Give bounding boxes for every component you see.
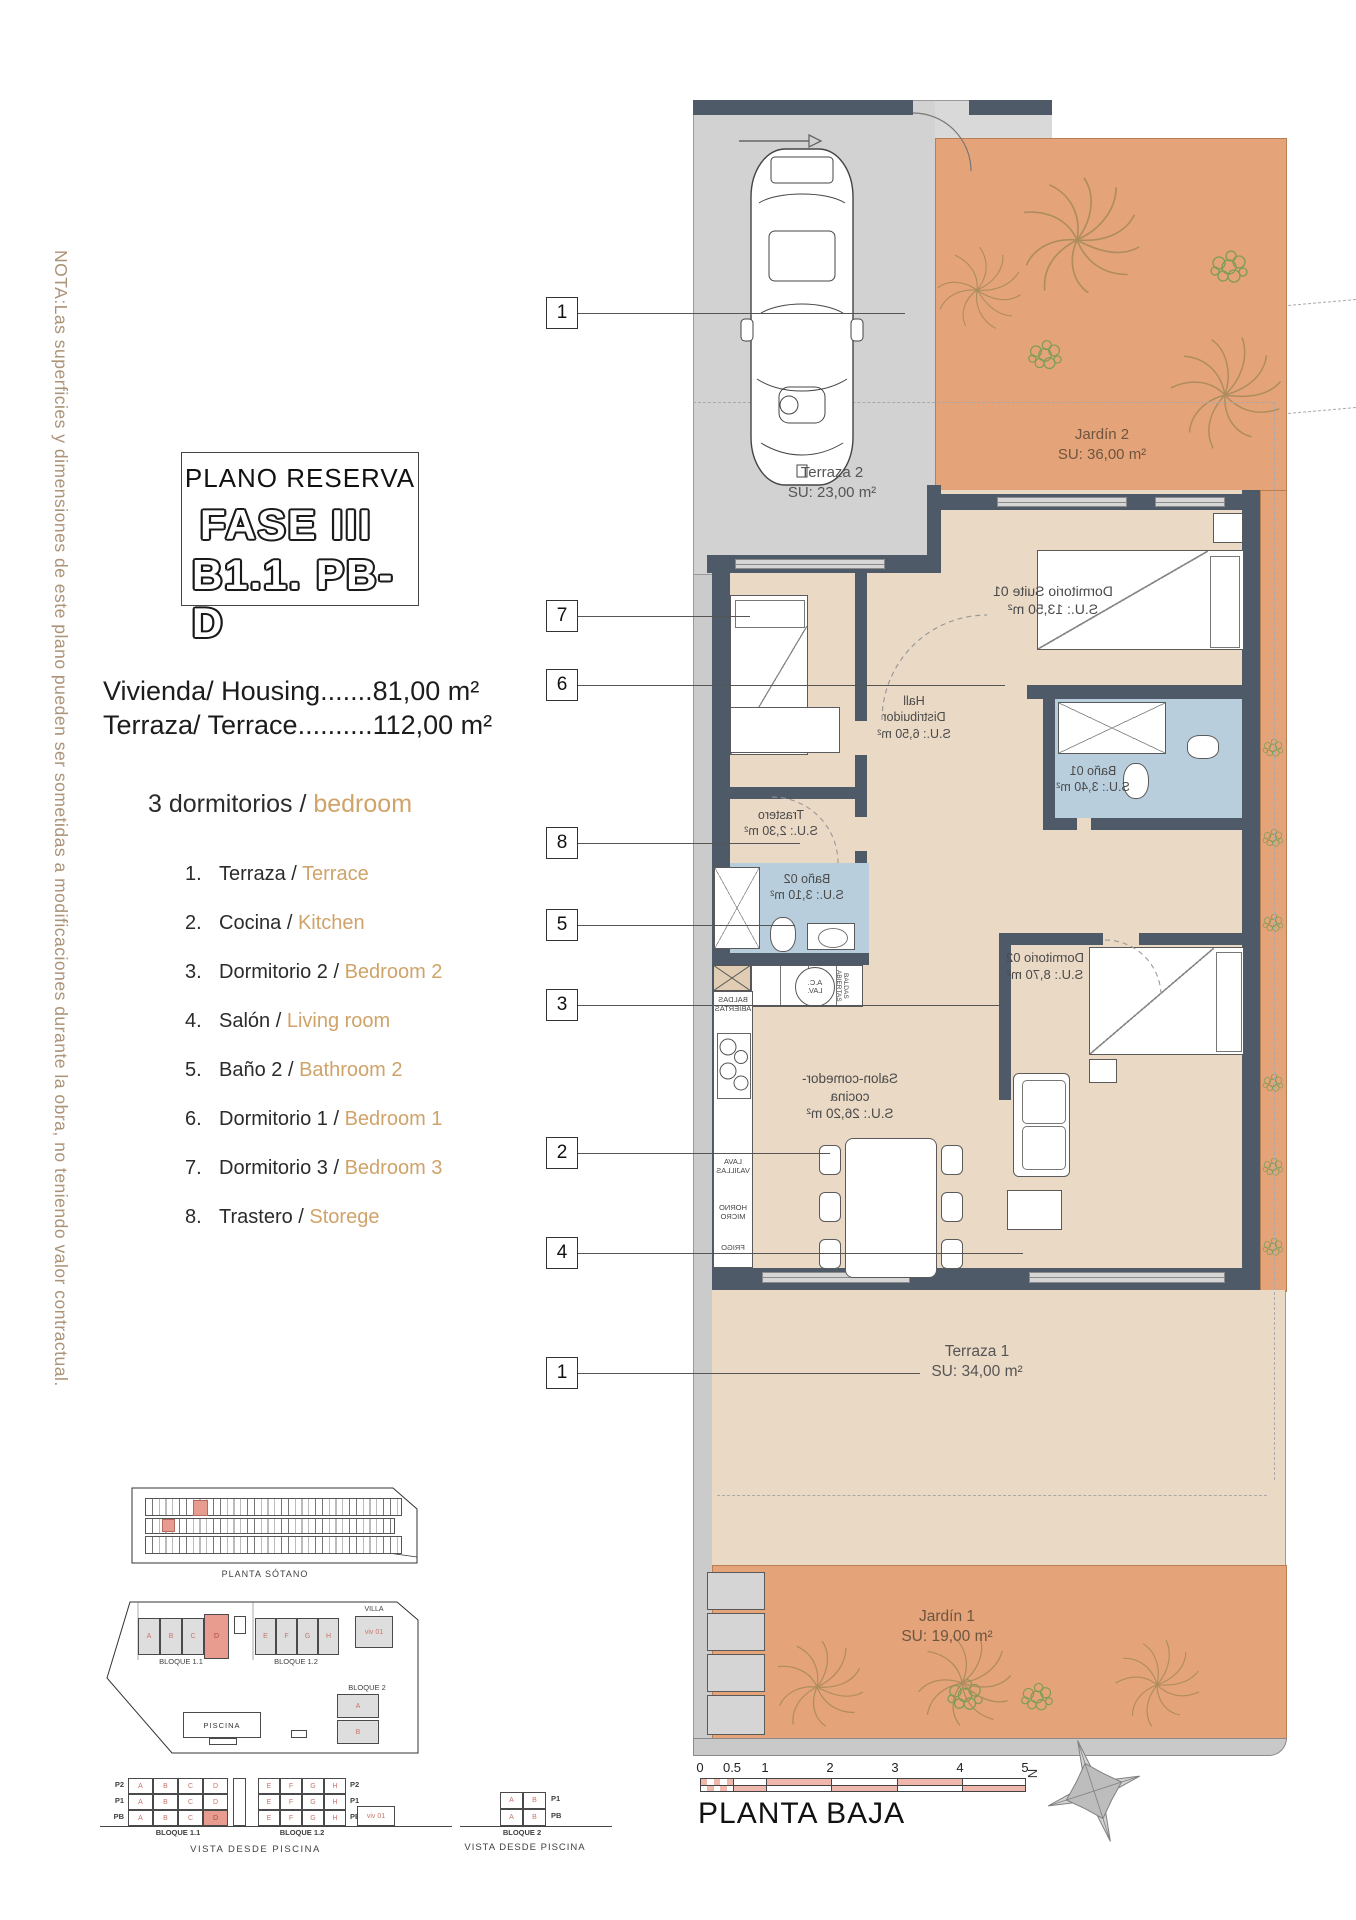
leader-line <box>578 1373 920 1374</box>
elev-cell: A <box>128 1778 153 1794</box>
window <box>1155 497 1225 507</box>
elev-cell: B <box>523 1792 546 1809</box>
elevation-baseline <box>460 1826 612 1827</box>
elev-cell: F <box>280 1810 302 1826</box>
elev-cell: D <box>203 1794 228 1810</box>
legend-item: 3.Dormitorio 2 / Bedroom 2 <box>185 961 442 984</box>
setback-dashed-line <box>1274 402 1275 1480</box>
elev-cell: E <box>258 1794 280 1810</box>
site-unit-d-highlighted: D <box>204 1614 229 1659</box>
open-shelves-label: BALDAS ABIERTAS <box>714 995 752 1013</box>
villa-footprint: viv 01 <box>355 1616 393 1648</box>
legend-en: Terrace <box>302 863 369 885</box>
wall <box>999 933 1103 945</box>
bloque2-label: BLOQUE 2 <box>337 1684 397 1693</box>
elev-cell: A <box>500 1792 523 1809</box>
elev-cell: A <box>128 1794 153 1810</box>
elev-cell: E <box>258 1810 280 1826</box>
legend-item: 4.Salón / Living room <box>185 1010 390 1033</box>
parking-row <box>145 1498 402 1516</box>
wall <box>693 100 913 115</box>
floor-label: P1 <box>350 1797 370 1806</box>
room-label-dorm02: Dormitorio 02S.U.: 8,70 m² <box>989 950 1101 984</box>
legend-en: Bathroom 2 <box>299 1059 402 1081</box>
pool-deck <box>209 1738 237 1745</box>
scale-tick: 2 <box>826 1760 833 1775</box>
elev-cell: C <box>178 1794 203 1810</box>
elev-cell-highlighted: D <box>203 1810 228 1826</box>
room-label-suite01: Dormitorio Suite 01S.U.: 13,50 m² <box>973 582 1133 618</box>
water-heater: A.C. LAV. <box>795 967 835 1007</box>
legend-es: Terraza / <box>219 863 302 885</box>
sotano-caption: PLANTA SÓTANO <box>165 1569 365 1579</box>
elev-cell: A <box>500 1809 523 1826</box>
legend-item: 1.Terraza / Terrace <box>185 863 369 886</box>
legend-es: Trastero / <box>219 1206 309 1228</box>
parking-row <box>145 1536 402 1554</box>
site-small-block <box>234 1616 246 1634</box>
miniplan-sotano: PLANTA SÓTANO <box>105 1485 420 1585</box>
site-small-structure <box>291 1730 307 1738</box>
wall <box>1043 818 1077 830</box>
villa-elev: viv 01 <box>357 1806 395 1826</box>
title-fase: FASE III <box>200 501 372 549</box>
room-label-bano01: Baño 01S.U.: 3,40 m² <box>1047 763 1139 796</box>
scale-tick: 1 <box>761 1760 768 1775</box>
terrace-area-line: Terraza/ Terrace..........112,00 m² <box>103 710 492 741</box>
oven-micro-label: HORNO MICRO <box>714 1203 752 1221</box>
elev-cell: G <box>302 1794 324 1810</box>
vista-caption: VISTA DESDE PISCINA <box>455 1843 595 1854</box>
chair <box>941 1192 963 1222</box>
site-unit-f: F <box>276 1618 297 1655</box>
elev-cell: B <box>153 1794 178 1810</box>
site-unit-g: G <box>297 1618 318 1655</box>
bloque12-elev-caption: BLOQUE 1.2 <box>258 1829 346 1838</box>
elev-cell: B <box>153 1810 178 1826</box>
legend-en: Kitchen <box>298 912 365 934</box>
leader-line <box>578 313 905 314</box>
sink <box>807 923 855 950</box>
garden-storage <box>707 1572 765 1610</box>
elev-cell: C <box>178 1810 203 1826</box>
scale-tick: 4 <box>956 1760 963 1775</box>
room-label-jardin1: Jardín 1SU: 19,00 m² <box>877 1607 1017 1647</box>
hob-icon <box>717 1033 751 1099</box>
room-label-terraza2: Terraza 2SU: 23,00 m² <box>767 463 897 502</box>
plan-caption: PLANTA BAJA <box>698 1797 905 1831</box>
elev-cell: A <box>128 1810 153 1826</box>
legend-en: Storege <box>309 1206 379 1228</box>
bloque11-elev-caption: BLOQUE 1.1 <box>128 1829 228 1838</box>
shower <box>714 867 760 949</box>
setback-dashed-line <box>717 1495 1267 1496</box>
shower <box>1058 702 1166 754</box>
legend-es: Cocina / <box>219 912 298 934</box>
scale-bar: 0 0.5 1 2 3 4 5 <box>700 1760 1026 1796</box>
elev-cell: F <box>280 1778 302 1794</box>
leader-line <box>578 843 800 844</box>
site-unit-b: B <box>160 1618 182 1655</box>
room-label-terraza1: Terraza 1SU: 34,00 m² <box>907 1342 1047 1382</box>
leader-line <box>578 1153 830 1154</box>
plan-marker: 8 <box>546 827 578 859</box>
highlighted-parking-space <box>193 1500 208 1516</box>
fridge-label: FRIGO <box>714 1243 752 1252</box>
elev-cell: H <box>324 1778 346 1794</box>
leader-line <box>578 685 1005 686</box>
elev-cell: D <box>203 1778 228 1794</box>
legend-num: 2. <box>185 912 219 935</box>
title-unit-code: B1.1. PB-D <box>192 551 418 647</box>
open-shelves-label-vertical: BALDAS ABIERTAS <box>835 965 849 1007</box>
pantry-hatch <box>713 965 751 991</box>
elev-cell: H <box>324 1794 346 1810</box>
legend-num: 8. <box>185 1206 219 1229</box>
bloque12-label: BLOQUE 1.2 <box>253 1658 339 1667</box>
elev-cell: H <box>324 1810 346 1826</box>
plan-marker: 5 <box>546 909 578 941</box>
wall <box>1091 818 1260 830</box>
bloque2-unit-a: A <box>337 1694 379 1718</box>
nightstand <box>1089 1059 1117 1083</box>
scale-tick: 0.5 <box>723 1760 741 1775</box>
villa-label: VILLA <box>353 1606 395 1614</box>
garden-storage <box>707 1654 765 1692</box>
north-label: N <box>1025 1769 1040 1778</box>
leader-line <box>578 616 750 617</box>
wall <box>1027 685 1260 699</box>
highlighted-storage <box>162 1519 175 1532</box>
bloque2-unit-b: B <box>337 1720 379 1744</box>
vista-caption: VISTA DESDE PISCINA <box>168 1845 343 1856</box>
toilet <box>770 917 796 952</box>
elev-cell: G <box>302 1778 324 1794</box>
water-heater-label: LAV. <box>808 987 823 995</box>
piscina: PISCINA <box>183 1712 261 1738</box>
legend-es: Baño 2 / <box>219 1059 299 1081</box>
leader-line <box>578 1005 1000 1006</box>
room-label-jardin2: Jardín 2SU: 36,00 m² <box>1032 425 1172 464</box>
legend-en: Bedroom 2 <box>345 961 443 983</box>
bloque11-label: BLOQUE 1.1 <box>133 1658 229 1667</box>
chair <box>941 1145 963 1175</box>
parking-row <box>145 1518 395 1534</box>
legend-item: 2.Cocina / Kitchen <box>185 912 365 935</box>
legend-item: 6.Dormitorio 1 / Bedroom 1 <box>185 1108 442 1131</box>
legend-es: Dormitorio 1 / <box>219 1108 345 1130</box>
legend-en: Bedroom 3 <box>345 1157 443 1179</box>
door-arc <box>913 113 971 171</box>
scale-tick: 3 <box>891 1760 898 1775</box>
floor-label: P1 <box>104 1797 124 1806</box>
title-plano-reserva: PLANO RESERVA <box>182 463 418 494</box>
floor-plan-sheet: NOTA:Las superficies y dimensiones de es… <box>0 0 1356 1920</box>
elev-cell: B <box>153 1778 178 1794</box>
wall <box>855 799 867 817</box>
floor-label: PB <box>551 1812 569 1821</box>
legend-num: 1. <box>185 863 219 886</box>
wall <box>1242 490 1260 1290</box>
plan-marker: 1 <box>546 297 578 329</box>
legend-item: 8.Trastero / Storege <box>185 1206 379 1229</box>
plan-marker: 1 <box>546 1357 578 1389</box>
door-arc <box>1105 940 1161 996</box>
wall <box>1043 699 1055 818</box>
plan-marker: 6 <box>546 669 578 701</box>
elev-cell: G <box>302 1810 324 1826</box>
legend-num: 4. <box>185 1010 219 1033</box>
coffee-table <box>1007 1190 1062 1230</box>
legend-num: 6. <box>185 1108 219 1131</box>
bedrooms-es: 3 dormitorios / <box>148 790 313 818</box>
site-unit-c: C <box>182 1618 204 1655</box>
chair <box>819 1145 841 1175</box>
elev-cell: C <box>178 1778 203 1794</box>
legend-item: 5.Baño 2 / Bathroom 2 <box>185 1059 402 1082</box>
floor-label: P2 <box>104 1781 124 1790</box>
scale-bar-graphic <box>700 1778 1026 1792</box>
plan-marker: 2 <box>546 1137 578 1169</box>
wall <box>969 100 1052 115</box>
room-label-trastero: TrasteroS.U.: 2,30 m² <box>735 807 827 840</box>
leader-line <box>578 1253 1023 1254</box>
bloque2-elev-caption: BLOQUE 2 <box>494 1829 550 1838</box>
plan-marker: 7 <box>546 600 578 632</box>
wardrobe <box>730 707 840 753</box>
room-label-hall: HallDistribuidorS.U.: 6,50 m² <box>872 693 956 742</box>
legend-num: 5. <box>185 1059 219 1082</box>
setback-dashed-line <box>1288 299 1356 306</box>
site-unit-a: A <box>138 1618 160 1655</box>
wall <box>712 953 869 965</box>
legend-en: Living room <box>287 1010 390 1032</box>
floor-label: PB <box>104 1813 124 1822</box>
chair <box>819 1192 841 1222</box>
plan-marker: 3 <box>546 989 578 1021</box>
wall <box>855 573 867 721</box>
compass-icon <box>1046 1738 1142 1844</box>
garden-storage <box>707 1613 765 1651</box>
dishwasher-label: LAVA VAJILLAS <box>714 1157 752 1175</box>
site-unit-h: H <box>318 1618 339 1655</box>
leader-line <box>578 925 795 926</box>
sofa <box>1013 1073 1070 1177</box>
legend-en: Bedroom 1 <box>345 1108 443 1130</box>
garden-storage <box>707 1695 765 1735</box>
bedrooms-en: bedroom <box>313 790 412 818</box>
window <box>1029 1272 1225 1283</box>
elev-cell: F <box>280 1794 302 1810</box>
elev-stair-core <box>233 1778 246 1826</box>
elev-cell: B <box>523 1809 546 1826</box>
elevation-baseline <box>100 1826 452 1827</box>
housing-area-line: Vivienda/ Housing.......81,00 m² <box>103 676 479 707</box>
floor-label: P2 <box>350 1781 370 1790</box>
bedrooms-line: 3 dormitorios / bedroom <box>148 790 412 819</box>
plan-marker: 4 <box>546 1237 578 1269</box>
nightstand <box>1213 513 1243 543</box>
floor-plan: A.C. LAV. BALDAS ABIERTAS BALDAS ABIERTA… <box>677 95 1289 1760</box>
legend-num: 3. <box>185 961 219 984</box>
legend-num: 7. <box>185 1157 219 1180</box>
room-label-bano02: Baño 02S.U.: 3,10 m² <box>761 871 853 904</box>
miniplan-site: A B C D E F G H VILLA viv 01 BLOQUE 1.1 … <box>105 1600 420 1760</box>
sink <box>1187 735 1219 759</box>
dining-table <box>845 1138 937 1278</box>
elev-cell: E <box>258 1778 280 1794</box>
site-unit-e: E <box>255 1618 276 1655</box>
disclaimer-note: NOTA:Las superficies y dimensiones de es… <box>50 250 71 1640</box>
legend-es: Dormitorio 2 / <box>219 961 345 983</box>
legend-es: Dormitorio 3 / <box>219 1157 345 1179</box>
scale-tick: 0 <box>696 1760 703 1775</box>
setback-dashed-line <box>1288 407 1356 414</box>
floor-label: P1 <box>551 1795 569 1804</box>
legend-es: Salón / <box>219 1010 287 1032</box>
room-label-salon: Salon-comedor-cocinaS.U.: 26,20 m² <box>785 1070 915 1123</box>
legend-item: 7.Dormitorio 3 / Bedroom 3 <box>185 1157 442 1180</box>
car-icon <box>737 143 867 491</box>
title-box: PLANO RESERVA FASE III B1.1. PB-D <box>181 452 419 606</box>
window <box>735 559 885 569</box>
window <box>997 497 1127 507</box>
wall <box>855 755 867 787</box>
